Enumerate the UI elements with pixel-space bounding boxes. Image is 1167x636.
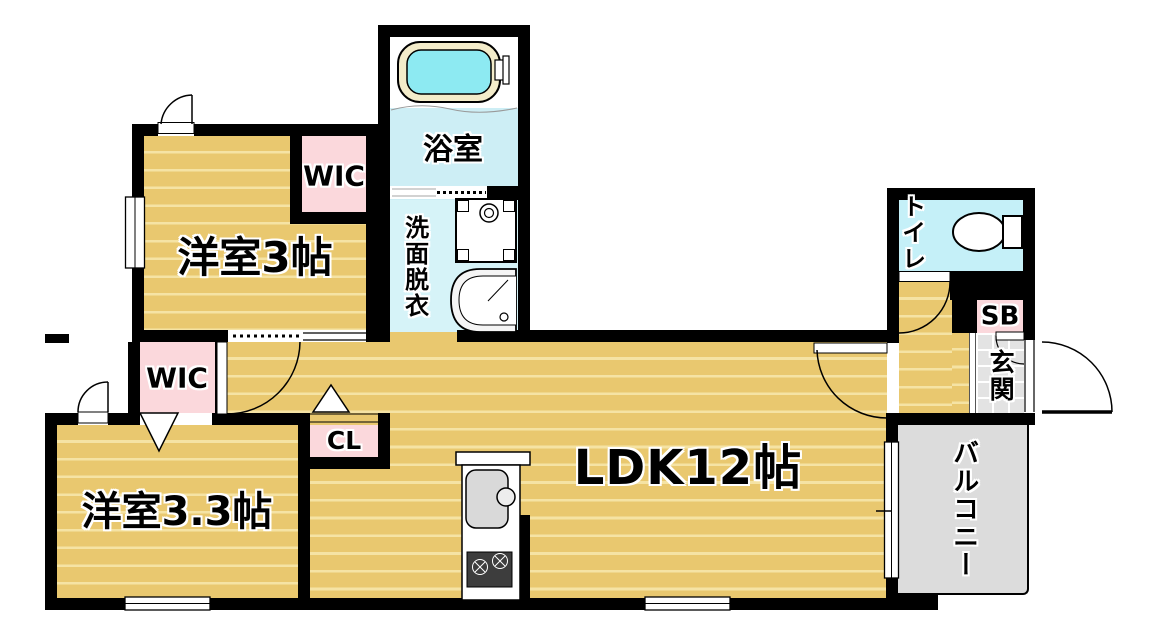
wall (366, 124, 378, 342)
wall (1023, 188, 1035, 340)
label-washroom: 洗面脱衣 (401, 215, 426, 319)
label-balcony: バルコニー (949, 439, 976, 579)
wall (290, 136, 302, 224)
wall (132, 330, 228, 342)
label-wic2: WIC (146, 363, 208, 392)
label-bedroom33: 洋室3.3帖 (82, 491, 273, 533)
wall (132, 124, 144, 342)
wall (108, 413, 140, 425)
window-ldk (645, 597, 730, 610)
wall (886, 413, 1035, 425)
wall (290, 212, 378, 224)
hall-toilet-floor2 (952, 333, 970, 413)
label-entrance: 玄関 (987, 349, 1013, 403)
door-bedroom3-swing (158, 95, 194, 134)
wall (886, 425, 898, 442)
wall (952, 283, 977, 333)
wall (298, 457, 390, 469)
wall (378, 25, 530, 37)
wall (45, 598, 125, 610)
door-bedroom33-swing (78, 382, 108, 423)
label-bath: 浴室 (423, 134, 483, 166)
wall (215, 342, 227, 413)
wall (298, 413, 310, 610)
door-entrance-swing (1024, 340, 1112, 412)
floor-plan: 洋室3帖 WIC 浴室 洗面脱衣 トイレ SB 玄関 バルコニー WIC CL … (0, 0, 1167, 636)
label-shoebox: SB (981, 303, 1020, 330)
wall (530, 330, 887, 342)
wall (457, 330, 530, 342)
wall (520, 515, 530, 600)
label-ldk: LDK12帖 (574, 443, 802, 493)
wall (886, 595, 938, 608)
label-wic1: WIC (303, 161, 365, 190)
wall (128, 342, 140, 413)
wall (378, 25, 390, 342)
wall (212, 413, 298, 425)
wall (194, 124, 378, 136)
sliding-door-bedroom3 (233, 333, 376, 340)
label-bedroom3: 洋室3帖 (177, 236, 332, 280)
bathtub-zone (390, 37, 518, 110)
entrance-step (969, 333, 976, 413)
wall (45, 413, 78, 425)
label-toilet: トイレ (898, 194, 923, 272)
washroom-doorway-floor (390, 332, 457, 342)
ldk-hall-floor (227, 342, 887, 413)
hall-toilet-floor (899, 282, 952, 413)
wall (45, 413, 57, 610)
label-closet: CL (327, 428, 361, 454)
wall (487, 186, 518, 200)
wall (210, 598, 645, 610)
wall (518, 25, 530, 342)
wall (45, 334, 69, 343)
window-bedroom33 (125, 597, 210, 610)
